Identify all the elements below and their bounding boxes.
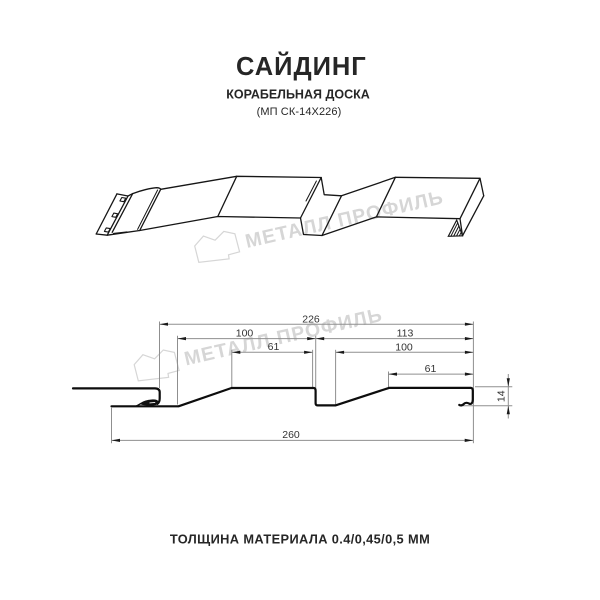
svg-text:САЙДИНГ: САЙДИНГ <box>236 51 367 81</box>
svg-text:14: 14 <box>496 390 508 402</box>
svg-text:100: 100 <box>395 341 413 353</box>
svg-text:61: 61 <box>425 363 437 375</box>
svg-text:61: 61 <box>268 341 280 353</box>
svg-text:КОРАБЕЛЬНАЯ ДОСКА: КОРАБЕЛЬНАЯ ДОСКА <box>226 88 370 102</box>
svg-text:(МП СК-14Х226): (МП СК-14Х226) <box>257 106 342 118</box>
svg-text:100: 100 <box>236 327 254 339</box>
svg-text:260: 260 <box>282 429 300 441</box>
svg-text:113: 113 <box>397 328 414 340</box>
svg-text:ТОЛЩИНА МАТЕРИАЛА 0.4/0,45/0,5: ТОЛЩИНА МАТЕРИАЛА 0.4/0,45/0,5 ММ <box>170 531 430 546</box>
svg-text:226: 226 <box>302 313 320 325</box>
